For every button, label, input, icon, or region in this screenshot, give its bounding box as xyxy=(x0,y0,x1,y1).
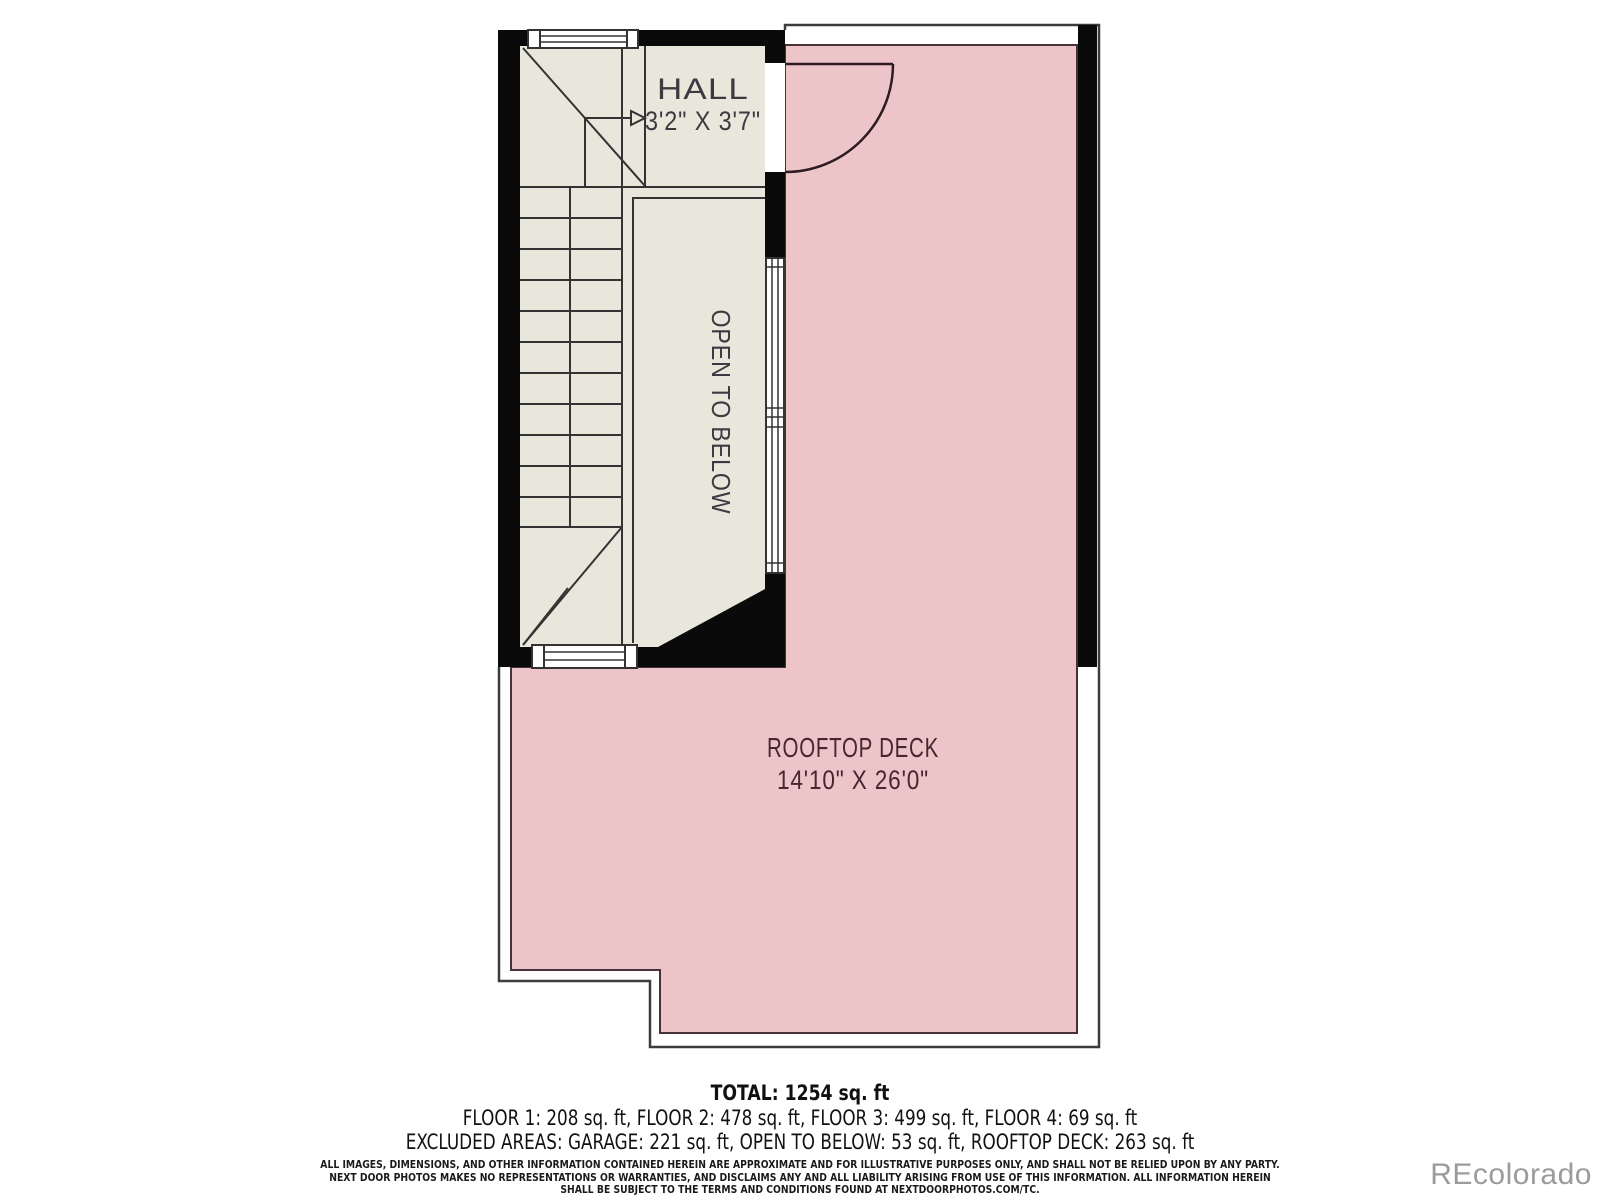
glass-wall-window xyxy=(766,258,784,573)
wall-mid xyxy=(765,172,785,258)
rooftop-deck-dims: 14'10" X 26'0" xyxy=(777,765,929,795)
wall-low xyxy=(765,573,785,647)
floor-plan-canvas: HALL 3'2" X 3'7" OPEN TO BELOW ROOFTOP D… xyxy=(0,0,1600,1200)
top-window xyxy=(528,30,638,48)
excluded-areas-line: EXCLUDED AREAS: GARAGE: 221 sq. ft, OPEN… xyxy=(160,1130,1440,1154)
area-summary: TOTAL: 1254 sq. ft FLOOR 1: 208 sq. ft, … xyxy=(0,1080,1600,1197)
bottom-window xyxy=(532,645,637,668)
disclaimer: ALL IMAGES, DIMENSIONS, AND OTHER INFORM… xyxy=(0,1159,1600,1197)
floor-plan-page: HALL 3'2" X 3'7" OPEN TO BELOW ROOFTOP D… xyxy=(0,0,1600,1200)
open-to-below-label: OPEN TO BELOW xyxy=(706,310,736,515)
disclaimer-line-3: SHALL BE SUBJECT TO THE TERMS AND CONDIT… xyxy=(128,1184,1472,1197)
hall-label: HALL xyxy=(657,73,749,106)
wall-door-stub xyxy=(765,45,785,63)
floor-areas-line: FLOOR 1: 208 sq. ft, FLOOR 2: 478 sq. ft… xyxy=(160,1106,1440,1130)
total-area-line: TOTAL: 1254 sq. ft xyxy=(144,1080,1456,1106)
wall-left xyxy=(498,30,520,667)
recolorado-watermark: REcolorado xyxy=(1430,1158,1592,1192)
wall-right xyxy=(1078,25,1097,667)
hall-dims: 3'2" X 3'7" xyxy=(645,106,761,136)
rooftop-deck-label: ROOFTOP DECK xyxy=(767,732,939,763)
